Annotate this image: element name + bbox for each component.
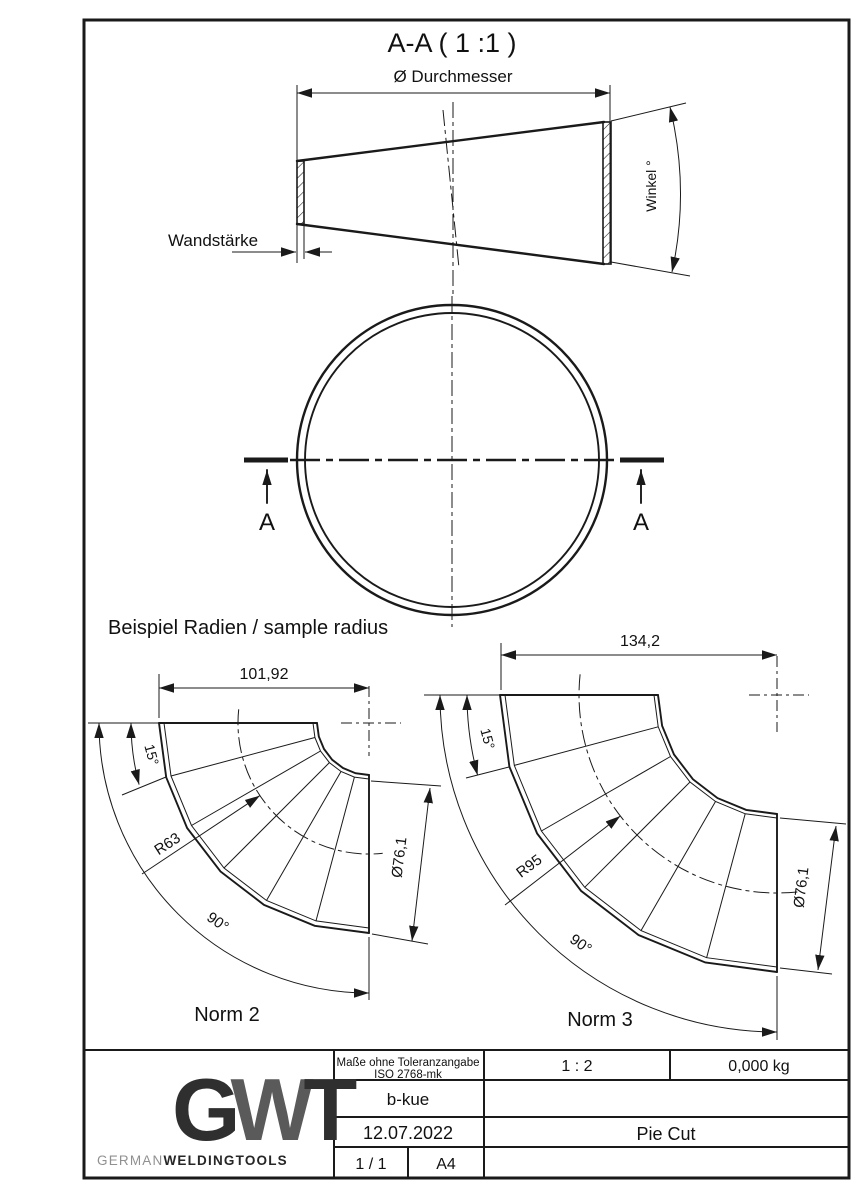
logo-letter-t: T [304, 1060, 357, 1159]
date-value: 12.07.2022 [363, 1123, 453, 1143]
left-wall-section [297, 161, 304, 224]
creator-value: b-kue [387, 1090, 430, 1109]
extension-line [371, 781, 441, 786]
pipe-front-view: A A [244, 296, 664, 627]
logo-letter-g: G [172, 1060, 235, 1159]
norm3-width-label: 134,2 [620, 633, 660, 650]
extension-line [780, 968, 832, 974]
weight-value: 0,000 kg [728, 1058, 789, 1075]
extension-line [780, 818, 846, 824]
section-mark-right: A [633, 509, 649, 536]
norm3-pipe-dia-label: Ø76,1 [791, 866, 813, 909]
title-block: GWT GERMANWELDINGTOOLS Maße ohne Toleran… [84, 1050, 849, 1178]
right-wall-section [603, 122, 611, 264]
norm2-segment-joints [171, 738, 354, 921]
norm3-seg-angle-arc [467, 695, 478, 775]
paper-format: A4 [436, 1156, 456, 1173]
norm2-width-label: 101,92 [240, 666, 289, 683]
cone-bottom-edge [297, 224, 604, 264]
norm3-bend-angle-label: 90° [566, 931, 594, 958]
section-mark-left: A [259, 509, 275, 536]
cone-top-edge [297, 122, 604, 161]
drawing-sheet: A-A ( 1 :1 ) Ø Durchmesser Winkel ° Wand… [0, 0, 868, 1199]
norm2-bend-angle-label: 90° [203, 909, 231, 936]
norm2-caption: Norm 2 [194, 1004, 260, 1026]
sheet-number: 1 / 1 [355, 1156, 386, 1173]
brand-name: GERMANWELDINGTOOLS [97, 1153, 288, 1168]
angle-dim-label: Winkel ° [643, 160, 659, 212]
tolerance-note-line1: Maße ohne Toleranzangabe [336, 1057, 479, 1069]
angle-extension-bottom [611, 262, 690, 276]
norm3-pipe-dia-dim-line [818, 826, 836, 970]
technical-drawing: A-A ( 1 :1 ) Ø Durchmesser Winkel ° Wand… [0, 0, 868, 1199]
section-title-label: A-A ( 1 :1 ) [387, 28, 516, 58]
norm2-view: 101,92 15° 90° R63 Ø76,1 Norm 2 [88, 666, 441, 1026]
scale-value: 1 : 2 [561, 1058, 592, 1075]
norm3-seg-angle-label: 15° [477, 726, 498, 751]
norm2-seg-angle-label: 15° [141, 742, 162, 767]
norm2-pipe-dia-dim-line [412, 788, 430, 941]
norm2-joint1-extension [122, 777, 166, 795]
norm2-pipe-dia-label: Ø76,1 [389, 836, 411, 879]
diameter-dim-label: Ø Durchmesser [393, 67, 512, 86]
extension-line [372, 934, 428, 944]
brand-light-part: GERMAN [97, 1153, 163, 1168]
norm3-segment-joints [514, 727, 745, 958]
cone-section-view: A-A ( 1 :1 ) Ø Durchmesser Winkel ° Wand… [168, 28, 690, 297]
norm3-caption: Norm 3 [567, 1009, 633, 1031]
logo-gwt: GWT [172, 1060, 357, 1159]
samples-heading: Beispiel Radien / sample radius [108, 617, 388, 639]
norm3-joint1-extension [466, 767, 509, 778]
norm2-seg-angle-arc [131, 723, 139, 785]
company-logo: GWT GERMANWELDINGTOOLS [97, 1060, 357, 1168]
norm3-view: 134,2 15° 90° R95 Ø76,1 Norm 3 [424, 633, 846, 1040]
logo-letter-w: W [230, 1060, 313, 1159]
angle-extension-top [611, 103, 686, 121]
angle-dim-arc [670, 107, 681, 272]
part-title: Pie Cut [636, 1124, 695, 1144]
brand-bold-part: WELDINGTOOLS [163, 1153, 287, 1168]
tolerance-note-line2: ISO 2768-mk [374, 1069, 442, 1081]
wall-dim-label: Wandstärke [168, 231, 258, 250]
norm2-radius-label: R63 [151, 830, 183, 859]
norm2-radius-leader [142, 796, 260, 874]
